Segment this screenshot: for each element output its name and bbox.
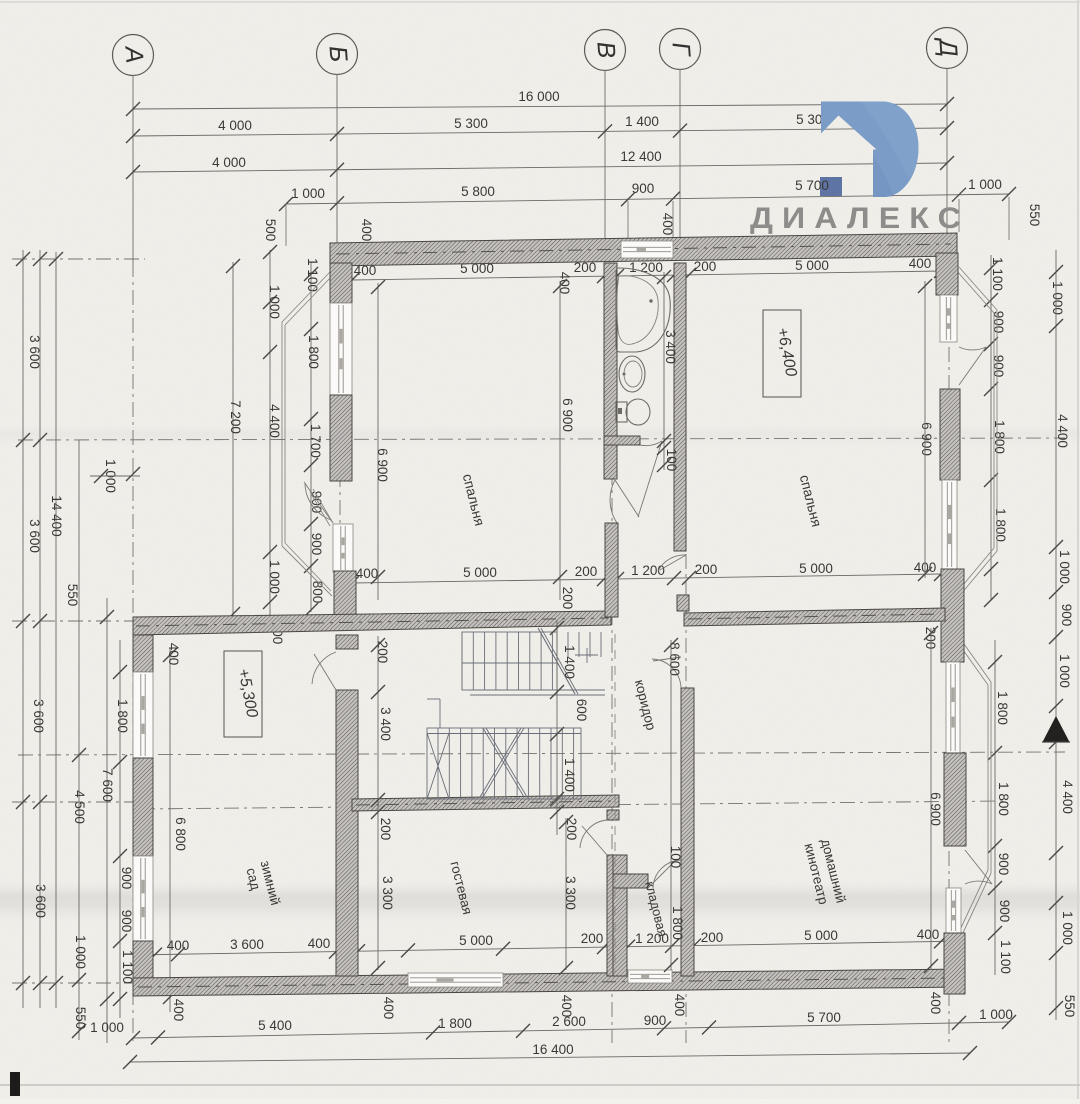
svg-text:3 400: 3 400 (378, 707, 393, 741)
svg-text:Б: Б (323, 45, 352, 63)
svg-text:1 100: 1 100 (990, 257, 1005, 291)
svg-text:900: 900 (119, 910, 134, 933)
svg-text:А: А (119, 44, 148, 65)
svg-text:5 000: 5 000 (795, 258, 829, 273)
svg-text:4 500: 4 500 (72, 790, 87, 824)
svg-text:1 400: 1 400 (625, 114, 659, 129)
svg-text:900: 900 (997, 900, 1012, 923)
svg-text:900: 900 (309, 533, 324, 556)
svg-text:6 800: 6 800 (173, 817, 188, 851)
svg-text:5 300: 5 300 (454, 116, 488, 131)
svg-text:900: 900 (1059, 604, 1074, 627)
svg-text:1 800: 1 800 (115, 699, 130, 733)
svg-text:900: 900 (119, 867, 134, 890)
svg-text:1 800: 1 800 (995, 691, 1010, 725)
svg-text:5 800: 5 800 (461, 184, 495, 199)
svg-text:400: 400 (308, 936, 331, 951)
svg-text:400: 400 (917, 927, 940, 942)
svg-text:4 400: 4 400 (267, 404, 282, 438)
svg-text:200: 200 (581, 931, 604, 946)
svg-text:400: 400 (928, 992, 943, 1015)
svg-text:900: 900 (991, 311, 1006, 334)
svg-text:550: 550 (73, 1007, 88, 1030)
svg-text:400: 400 (356, 566, 379, 581)
svg-text:1 100: 1 100 (305, 258, 320, 292)
svg-text:400: 400 (167, 938, 190, 953)
svg-text:550: 550 (65, 584, 80, 607)
svg-text:3 600: 3 600 (230, 937, 264, 952)
svg-text:1 800: 1 800 (996, 782, 1011, 816)
svg-text:1 000: 1 000 (968, 177, 1002, 192)
svg-text:400: 400 (166, 643, 181, 666)
svg-text:6 900: 6 900 (560, 398, 575, 432)
svg-text:4 000: 4 000 (218, 118, 252, 133)
svg-text:12 400: 12 400 (620, 149, 661, 164)
svg-text:1 800: 1 800 (438, 1016, 472, 1031)
svg-text:400: 400 (171, 999, 186, 1022)
svg-text:3 400: 3 400 (663, 330, 678, 364)
svg-text:400: 400 (381, 997, 396, 1020)
svg-text:500: 500 (263, 219, 278, 242)
svg-text:200: 200 (694, 259, 717, 274)
svg-text:5 400: 5 400 (258, 1018, 292, 1033)
svg-text:3 600: 3 600 (33, 884, 48, 918)
svg-text:3 600: 3 600 (31, 699, 46, 733)
svg-text:400: 400 (672, 994, 687, 1017)
svg-text:400: 400 (557, 272, 572, 295)
svg-text:1 000: 1 000 (1060, 911, 1075, 945)
svg-text:1 700: 1 700 (308, 424, 323, 458)
svg-text:3 600: 3 600 (27, 335, 42, 369)
svg-text:1 000: 1 000 (1050, 281, 1065, 315)
svg-text:14 400: 14 400 (49, 495, 64, 536)
svg-text:5 700: 5 700 (795, 178, 829, 193)
svg-text:5 000: 5 000 (459, 933, 493, 948)
svg-text:1 000: 1 000 (73, 935, 88, 969)
svg-text:4 000: 4 000 (212, 155, 246, 170)
svg-text:1 800: 1 800 (306, 335, 321, 369)
svg-text:3 300: 3 300 (380, 876, 395, 910)
svg-text:16 000: 16 000 (518, 89, 559, 104)
svg-text:1 100: 1 100 (998, 940, 1013, 974)
svg-text:1 400: 1 400 (562, 645, 577, 679)
svg-text:550: 550 (1062, 995, 1077, 1018)
svg-text:200: 200 (695, 562, 718, 577)
svg-text:1 000: 1 000 (267, 560, 282, 594)
svg-text:5 000: 5 000 (463, 565, 497, 580)
svg-text:100: 100 (668, 846, 683, 869)
svg-text:400: 400 (660, 213, 675, 236)
svg-text:1 000: 1 000 (291, 186, 325, 201)
svg-text:100: 100 (664, 449, 679, 472)
svg-text:6 900: 6 900 (919, 422, 934, 456)
svg-text:ДИАЛЕКС: ДИАЛЕКС (750, 202, 970, 235)
svg-text:4 400: 4 400 (1055, 414, 1070, 448)
svg-text:1 800: 1 800 (993, 508, 1008, 542)
svg-text:800: 800 (310, 581, 325, 604)
svg-text:5 700: 5 700 (807, 1010, 841, 1025)
svg-text:2 600: 2 600 (552, 1014, 586, 1029)
svg-text:1 800: 1 800 (670, 906, 685, 940)
svg-text:200: 200 (575, 564, 598, 579)
svg-text:5 000: 5 000 (804, 928, 838, 943)
svg-text:200: 200 (375, 641, 390, 664)
svg-text:1 200: 1 200 (631, 563, 665, 578)
svg-text:1 000: 1 000 (1057, 654, 1072, 688)
svg-text:7 200: 7 200 (228, 400, 243, 434)
svg-text:4 400: 4 400 (1060, 780, 1075, 814)
svg-text:3 300: 3 300 (563, 876, 578, 910)
svg-text:6 900: 6 900 (928, 792, 943, 826)
svg-text:400: 400 (359, 219, 374, 242)
svg-text:200: 200 (378, 818, 393, 841)
svg-text:1 000: 1 000 (1057, 550, 1072, 584)
svg-text:400: 400 (909, 256, 932, 271)
svg-text:550: 550 (1027, 204, 1042, 227)
svg-text:900: 900 (632, 181, 655, 196)
svg-text:900: 900 (991, 355, 1006, 378)
svg-text:6 900: 6 900 (375, 448, 390, 482)
svg-text:1 000: 1 000 (979, 1007, 1013, 1022)
svg-text:1 400: 1 400 (562, 758, 577, 792)
svg-text:1 000: 1 000 (267, 285, 282, 319)
svg-text:3 600: 3 600 (27, 519, 42, 553)
svg-text:900: 900 (996, 853, 1011, 876)
svg-text:В: В (591, 41, 620, 60)
svg-text:200: 200 (560, 587, 575, 610)
svg-text:7 600: 7 600 (100, 768, 115, 802)
svg-text:200: 200 (701, 930, 724, 945)
svg-text:16 400: 16 400 (532, 1042, 573, 1057)
svg-text:600: 600 (574, 699, 589, 722)
svg-text:900: 900 (644, 1013, 667, 1028)
svg-text:5 000: 5 000 (799, 561, 833, 576)
svg-text:1 000: 1 000 (90, 1020, 124, 1035)
